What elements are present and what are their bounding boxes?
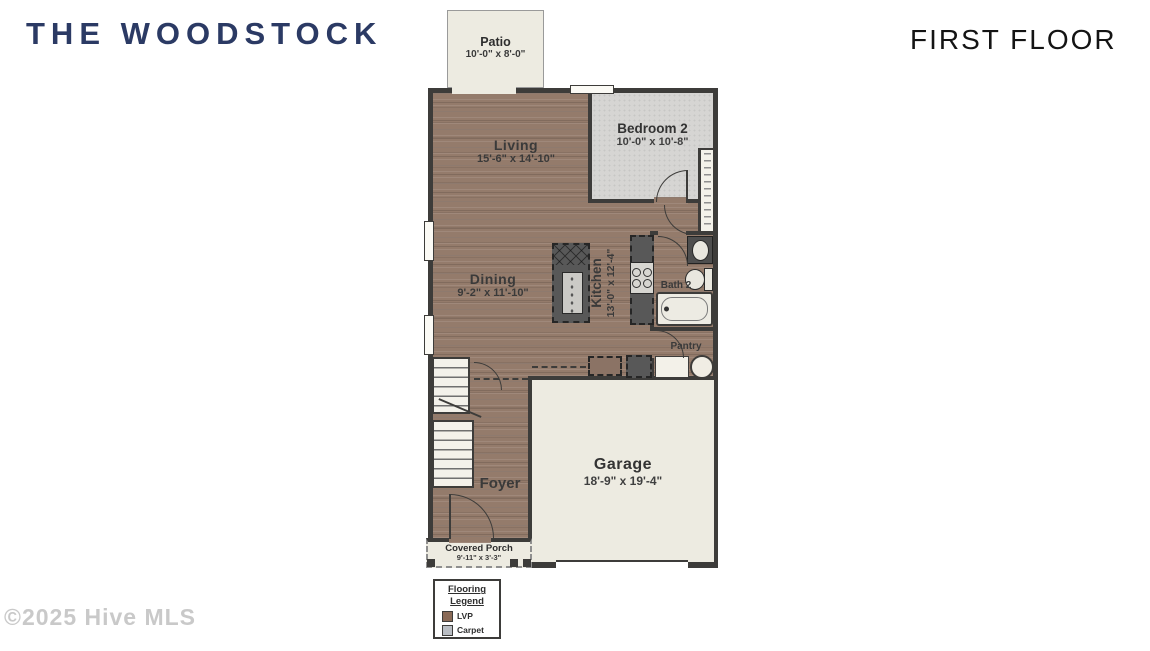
copyright-text: ©2025 Hive MLS xyxy=(4,604,196,631)
room-garage: Garage 18'-9" x 19'-4" xyxy=(528,376,718,566)
legend-title-line1: Flooring xyxy=(435,584,499,596)
room-dining-label: Dining 9'-2" x 11'-10" xyxy=(433,271,553,300)
carpet-label: Carpet xyxy=(457,625,484,635)
floor-plan-page: THE WOODSTOCK FIRST FLOOR ©2025 Hive MLS… xyxy=(0,0,1150,651)
patio-dims: 10'-0" x 8'-0" xyxy=(448,49,543,60)
lvp-label: LVP xyxy=(457,611,473,621)
dining-dims: 9'-2" x 11'-10" xyxy=(433,287,553,300)
bathtub-icon xyxy=(656,292,713,326)
bath-sink-icon xyxy=(692,240,709,261)
front-door-leaf xyxy=(449,494,451,539)
opening-kitchen-hall xyxy=(532,366,586,368)
bathtub-basin xyxy=(661,297,708,321)
garage-dims: 18'-9" x 19'-4" xyxy=(532,474,714,488)
room-living-label: Living 15'-6" x 14'-10" xyxy=(456,137,576,166)
bath-vanity xyxy=(687,236,713,264)
page-title: THE WOODSTOCK xyxy=(26,16,382,52)
lvp-swatch xyxy=(442,611,453,622)
dining-window xyxy=(424,315,434,355)
garage-door-opening xyxy=(556,560,688,568)
room-bedroom2: Bedroom 2 10'-0" x 10'-8" xyxy=(588,93,713,203)
water-heater-icon xyxy=(690,355,714,379)
flooring-legend: Flooring Legend LVP Carpet xyxy=(433,579,501,639)
kitchen-name: Kitchen xyxy=(589,258,605,308)
bedroom2-door-leaf xyxy=(686,170,688,203)
dining-name: Dining xyxy=(433,271,553,287)
closet-shelf-marks xyxy=(704,153,711,230)
room-foyer-label: Foyer xyxy=(464,475,536,492)
garage-name: Garage xyxy=(532,456,714,474)
living-window xyxy=(424,221,434,261)
room-patio: Patio 10'-0" x 8'-0" xyxy=(447,10,544,88)
porch-post xyxy=(523,559,531,567)
mudroom-counter-wood xyxy=(588,356,622,376)
porch-post xyxy=(510,559,518,567)
kitchen-dims: 13'-0" x 12'-4" xyxy=(605,249,617,318)
bedroom2-dims: 10'-0" x 10'-8" xyxy=(592,136,713,148)
room-bath2-label: Bath 2 xyxy=(656,280,696,292)
legend-title-line2: Legend xyxy=(435,596,499,608)
porch-post xyxy=(427,559,435,567)
floor-label: FIRST FLOOR xyxy=(910,24,1117,56)
living-dims: 15'-6" x 14'-10" xyxy=(456,153,576,166)
legend-item-carpet: Carpet xyxy=(442,625,499,636)
patio-name: Patio xyxy=(448,35,543,49)
bedroom2-name: Bedroom 2 xyxy=(592,121,713,136)
carpet-swatch xyxy=(442,625,453,636)
room-kitchen-label: Kitchen 13'-0" x 12'-4" xyxy=(548,228,658,338)
room-pantry-label: Pantry xyxy=(664,341,708,353)
bedroom2-closet xyxy=(698,148,713,232)
bedroom2-window xyxy=(570,85,614,94)
utility-niche xyxy=(655,356,689,378)
legend-item-lvp: LVP xyxy=(442,611,499,622)
living-name: Living xyxy=(456,137,576,153)
patio-sliding-door xyxy=(452,87,516,94)
mudroom-counter-dark xyxy=(626,355,652,378)
toilet-tank-icon xyxy=(704,268,713,291)
